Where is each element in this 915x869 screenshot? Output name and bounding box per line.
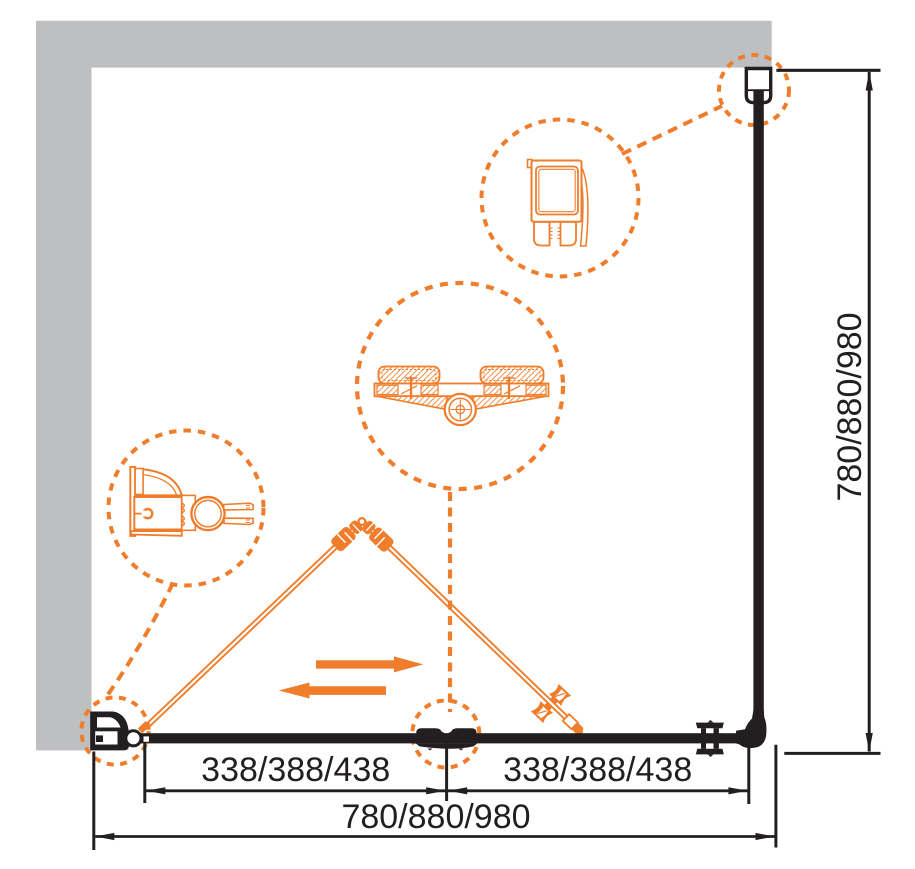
svg-text:780/880/980: 780/880/980 [341, 798, 530, 836]
svg-text:338/388/438: 338/388/438 [503, 751, 692, 789]
svg-text:338/388/438: 338/388/438 [201, 751, 390, 789]
svg-text:780/880/980: 780/880/980 [831, 312, 869, 501]
